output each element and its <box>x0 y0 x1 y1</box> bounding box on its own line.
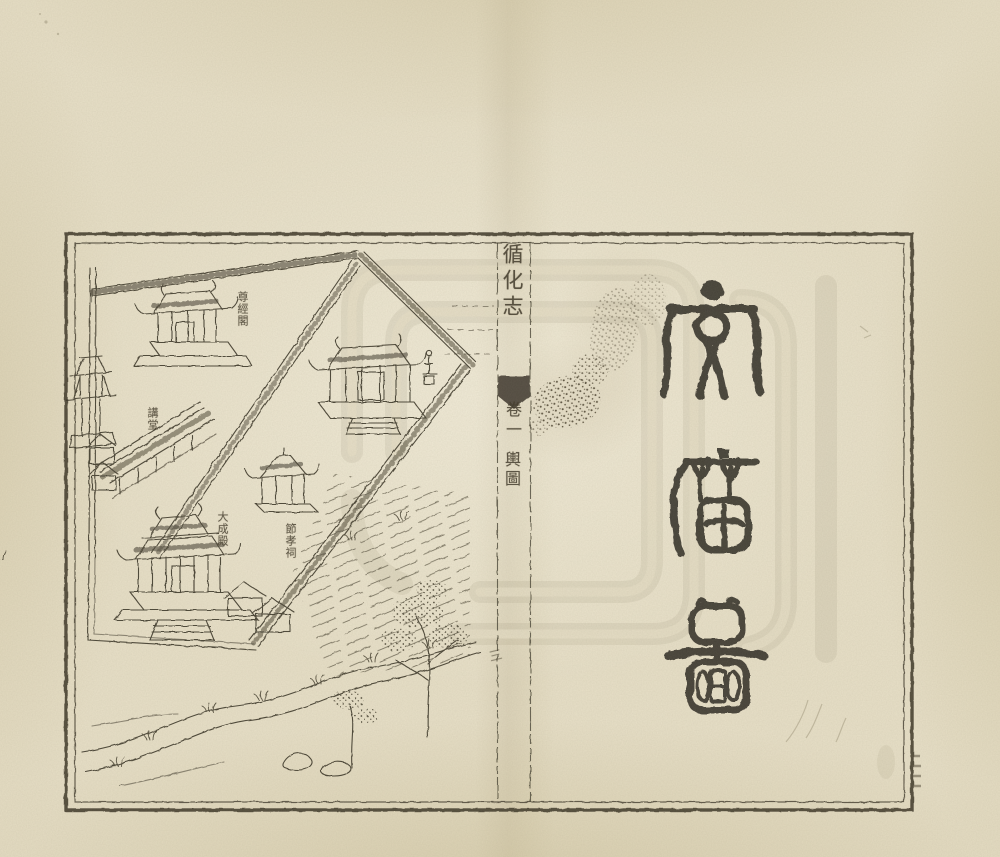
spine-book-title: 循化志 <box>501 243 522 321</box>
map-label-pavilion: 尊經閣 <box>237 291 248 327</box>
spine-section-label: 輿圖 <box>503 451 519 489</box>
spine-volume-label: 卷一 <box>504 401 520 441</box>
map-label-cloister: 講堂 <box>147 407 158 431</box>
map-label-main-hall: 大成殿 <box>217 511 228 547</box>
map-label-shrine: 節孝祠 <box>285 523 296 559</box>
scanned-page: 循化志 卷一 輿圖 三 尊經閣 講堂 大成殿 節孝祠 <box>0 0 1000 857</box>
